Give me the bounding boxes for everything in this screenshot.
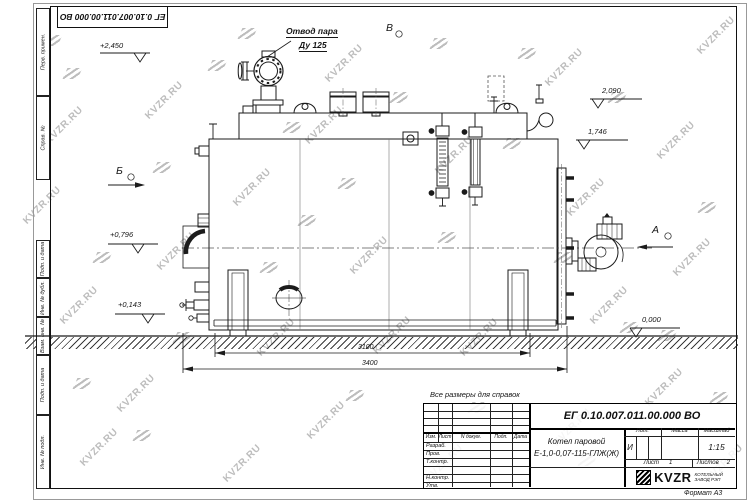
title-block: ЕГ 0.10.007.011.00.000 ВО Котел паровой … <box>423 403 737 489</box>
dimension-3400: 3400 <box>362 360 378 367</box>
tb-logo-cell: KVZR КОТЕЛЬНЫЙ ЗАВОД РЭП <box>624 467 735 487</box>
tb-col-data: Дата <box>512 432 529 442</box>
elevation-2450: +2,450 <box>100 42 123 50</box>
elevation-marks <box>100 53 680 337</box>
tb-row-nkontr: Н.контр. <box>426 476 449 482</box>
tb-line <box>424 418 529 419</box>
tb-logo-text: KVZR <box>654 471 691 484</box>
steam-outlet-valve <box>238 51 283 113</box>
tb-col-list: Лист <box>438 432 452 442</box>
tb-row-utv: Утв. <box>426 484 439 490</box>
tb-row-prov: Пров. <box>426 452 441 458</box>
tb-line <box>424 482 529 483</box>
view-label-b: Б <box>116 166 123 177</box>
tb-line <box>424 411 529 412</box>
tb-sheets-label: Листов <box>697 460 719 466</box>
callout-steam-outlet-line2: Ду 125 <box>299 41 327 52</box>
tb-col-izm: Изм. <box>424 432 438 442</box>
reference-note: Все размеры для справок <box>430 391 520 399</box>
drawing-sheet: KVZR.RUKVZR.RUKVZR.RUKVZR.RUKVZR.RUKVZR.… <box>0 0 750 500</box>
tb-doc-number: ЕГ 0.10.007.011.00.000 ВО <box>529 404 735 428</box>
tb-sheets-value: 2 <box>727 460 730 466</box>
spring-logo-icon <box>636 470 651 485</box>
tb-mass-label: Масса <box>661 428 698 436</box>
tb-sheet-label: Лист <box>644 460 659 466</box>
tb-sheet-value: 1 <box>669 460 672 466</box>
tb-scale-label: Масштаб <box>698 428 735 436</box>
tb-scale-value: 1:15 <box>698 436 735 459</box>
tb-lit-value: И <box>624 436 636 459</box>
tb-row-tkontr: Т.контр. <box>426 460 448 466</box>
dimension-3100: 3100 <box>358 344 374 351</box>
tb-col-podp: Подп. <box>490 432 512 442</box>
tb-row-razrab: Разраб. <box>426 444 446 450</box>
tb-sheets-cell: Листов 2 <box>692 459 735 467</box>
view-label-a: А <box>652 225 659 236</box>
top-doc-number: ЕГ 0.10.007.011.00.000 ВО <box>60 12 166 22</box>
support-legs <box>214 270 556 336</box>
callout-steam-outlet-line1: Отвод пара <box>286 27 338 38</box>
elevation-0000: 0,000 <box>642 316 661 324</box>
elevation-1746: 1,746 <box>588 128 607 136</box>
view-label-v: В <box>386 23 393 34</box>
tb-product-line1: Котел паровой <box>548 436 605 447</box>
tb-line <box>424 466 529 467</box>
burner-assembly <box>566 213 623 271</box>
tb-line <box>424 425 529 426</box>
tb-col-ndoc: N докум. <box>452 432 490 442</box>
top-doc-number-box: ЕГ 0.10.007.011.00.000 ВО <box>57 6 168 28</box>
tb-line <box>648 436 649 459</box>
elevation-0143: +0,143 <box>118 301 141 309</box>
elevation-2090: 2,090 <box>602 87 621 95</box>
tb-lit-label: Лит. <box>624 428 661 436</box>
tb-logo-caption2: ЗАВОД РЭП <box>695 477 723 482</box>
elevation-0796: +0,796 <box>110 231 133 239</box>
tb-line <box>529 467 624 468</box>
tb-sheet-cell: Лист 1 <box>624 459 692 467</box>
format-label: Формат А3 <box>684 490 722 497</box>
tb-line <box>636 436 637 459</box>
front-elbow-and-nozzles <box>180 124 217 322</box>
drum-top-fittings <box>243 76 553 145</box>
tb-product-line2: Е-1,0-0,07-115-ГЛЖ(Ж) <box>534 448 619 459</box>
water-level-gauges <box>429 113 482 206</box>
tb-product-name: Котел паровой Е-1,0-0,07-115-ГЛЖ(Ж) <box>529 428 624 467</box>
